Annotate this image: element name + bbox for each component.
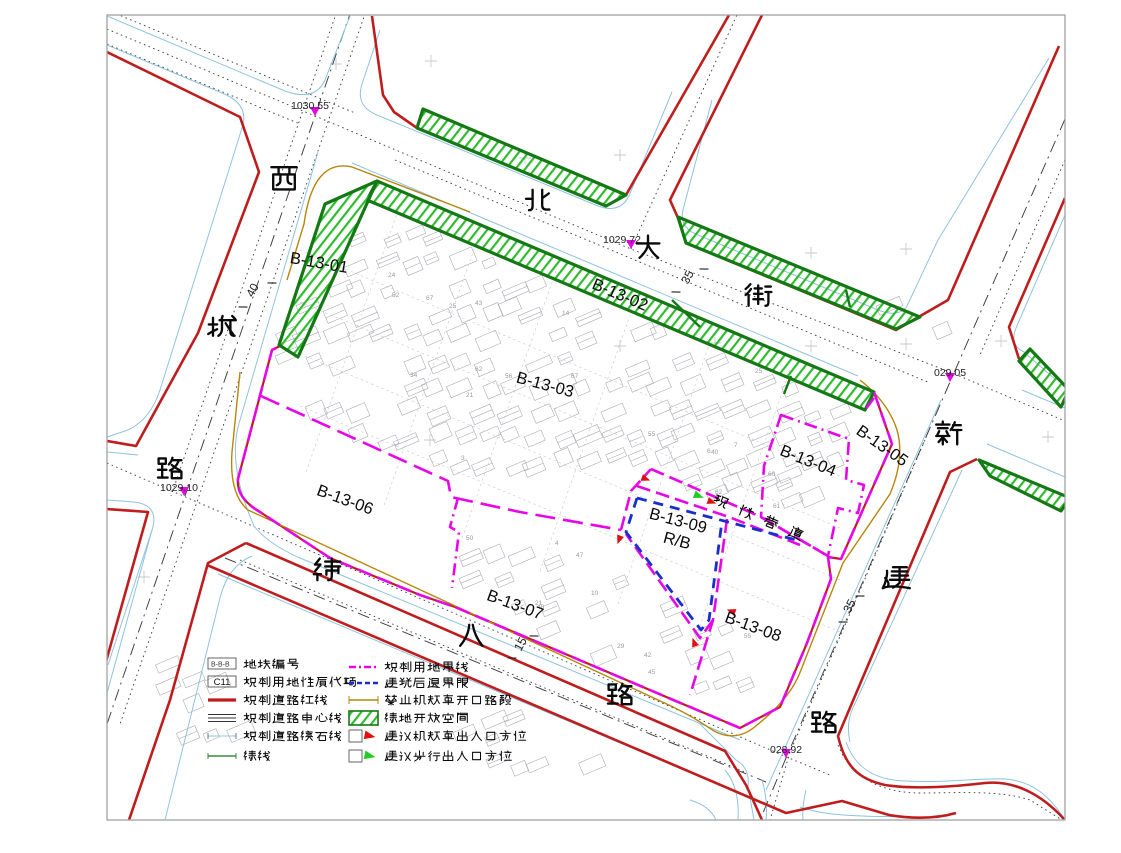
svg-text:40: 40 (711, 449, 719, 456)
svg-text:52: 52 (392, 292, 400, 299)
svg-text:67: 67 (571, 373, 579, 380)
svg-text:1030.55: 1030.55 (291, 100, 329, 112)
svg-text:56: 56 (505, 373, 513, 380)
svg-text:45: 45 (648, 669, 656, 676)
svg-text:43: 43 (475, 300, 483, 307)
svg-text:24: 24 (388, 272, 396, 279)
svg-text:25: 25 (755, 368, 763, 375)
svg-text:21: 21 (466, 392, 474, 399)
svg-text:1029.72: 1029.72 (603, 234, 641, 246)
svg-text:028.92: 028.92 (770, 744, 802, 756)
svg-text:60: 60 (768, 471, 776, 478)
svg-text:47: 47 (576, 552, 584, 559)
svg-text:29: 29 (617, 643, 625, 650)
svg-text:34: 34 (410, 372, 418, 379)
svg-text:67: 67 (426, 295, 434, 302)
svg-text:C11: C11 (214, 677, 231, 688)
svg-text:61: 61 (773, 503, 781, 510)
svg-text:029.05: 029.05 (934, 367, 966, 379)
svg-text:B-B-B: B-B-B (211, 662, 230, 669)
svg-text:10: 10 (591, 590, 599, 597)
svg-text:7: 7 (734, 442, 738, 449)
svg-text:55: 55 (648, 431, 656, 438)
svg-text:3: 3 (461, 455, 465, 462)
svg-text:25: 25 (449, 303, 457, 310)
svg-text:50: 50 (466, 535, 474, 542)
svg-text:4: 4 (555, 540, 559, 547)
svg-text:42: 42 (644, 652, 652, 659)
svg-text:1029.10: 1029.10 (160, 482, 198, 494)
svg-text:14: 14 (562, 310, 570, 317)
svg-text:62: 62 (475, 366, 483, 373)
